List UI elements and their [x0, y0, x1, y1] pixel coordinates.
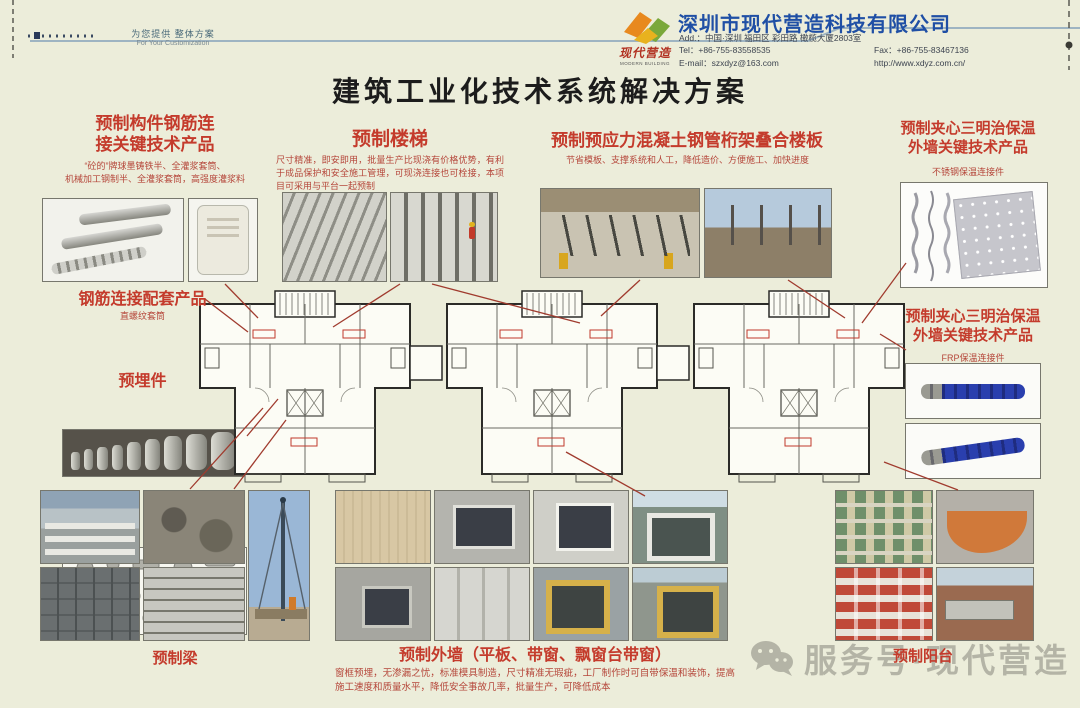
section-slab-title: 预制预应力混凝土钢管桁架叠合楼板	[538, 130, 836, 151]
company-contact: Add.：中国·深圳 福田区 彩田路 橄榄大厦2803室 Tel：+86-755…	[679, 32, 1069, 69]
tagline-en: For Your Customization	[108, 40, 238, 47]
sandwich-steel-line2: 外墙关键技术产品	[868, 139, 1068, 158]
photo-steel-connector-drawing	[900, 182, 1048, 288]
photo-balcony-curved	[936, 490, 1034, 564]
photo-wall-window-white	[533, 490, 629, 564]
company-logo-text: 现代营造 MODERN BUILDING	[614, 44, 676, 66]
photo-balcony-green-facade	[835, 490, 933, 564]
company-email: E-mail：szxdyz@163.com	[679, 57, 874, 69]
photo-baywindow-mold-yellow	[533, 567, 629, 641]
section-rebar-title: 预制构件钢筋连 接关键技术产品	[55, 113, 255, 156]
company-tel: Tel：+86-755-83558535	[679, 44, 874, 56]
sandwich-frp-line1: 预制夹心三明治保温	[878, 308, 1068, 327]
floor-plan	[195, 288, 910, 486]
section-sandwich-steel-sub: 不锈钢保温连接件	[868, 166, 1068, 179]
photo-crane	[248, 490, 310, 641]
photo-grout-sleeves	[42, 198, 184, 282]
photo-beam-frame	[40, 567, 140, 641]
section-stairs-title: 预制楼梯	[290, 128, 490, 152]
sandwich-steel-line1: 预制夹心三明治保温	[868, 120, 1068, 139]
section-wall-desc: 窗框预埋，无渗漏之忧，标准模具制造，尺寸精准无瑕疵，工厂制作时可自带保温和装饰，…	[335, 667, 735, 695]
photo-beam-factory	[40, 490, 140, 564]
poster: 为您提供 整体方案 For Your Customization 现代营造 MO…	[0, 0, 1080, 708]
worker-figure	[469, 227, 475, 239]
wechat-icon	[748, 638, 794, 678]
company-web: http://www.xdyz.com.cn/	[874, 57, 1069, 69]
section-coupler-title: 钢筋连接配套产品	[50, 290, 235, 310]
photo-balcony-red-facade	[835, 567, 933, 641]
photo-balcony-brick	[936, 567, 1034, 641]
sandwich-frp-line2: 外墙关键技术产品	[878, 327, 1068, 346]
section-stairs-desc: 尺寸精准，即安即用，批量生产比现浇有价格优势，有利于成品保护和安全施工管理，可现…	[276, 154, 504, 193]
section-slab-desc: 节省模板、支撑系统和人工，降低造价、方便施工、加快进度	[540, 154, 835, 167]
photo-baywindow-mold-yellow2	[632, 567, 728, 641]
rebar-title-line1: 预制构件钢筋连	[55, 113, 255, 134]
photo-slab-site	[704, 188, 832, 278]
section-embedded-title: 预埋件	[50, 372, 235, 392]
section-wall-title: 预制外墙（平板、带窗、飘窗台带窗）	[335, 646, 735, 666]
company-logo-icon	[618, 6, 676, 46]
photo-beam-rebar	[143, 567, 245, 641]
section-rebar-desc: “砼的”牌球墨铸铁半、全灌浆套筒、 机械加工钢制半、全灌浆套筒，高强度灌浆料	[30, 160, 280, 186]
section-coupler-sub: 直螺纹套筒	[50, 310, 235, 323]
section-sandwich-steel-title: 预制夹心三明治保温 外墙关键技术产品	[868, 120, 1068, 158]
section-balcony-title: 预制阳台	[868, 648, 978, 667]
photo-wall-window-grey	[434, 490, 530, 564]
photo-frp-connector-1	[905, 363, 1041, 419]
photo-truss-slab	[540, 188, 700, 278]
photo-grout-bag	[188, 198, 258, 282]
photo-wall-flat-panel	[335, 490, 431, 564]
photo-wall-panels	[434, 567, 530, 641]
page-title: 建筑工业化技术系统解决方案	[0, 70, 1080, 110]
photo-stairs-stacked	[282, 192, 387, 282]
photo-baywindow-mold-green	[632, 490, 728, 564]
tagline-cn: 为您提供 整体方案	[108, 27, 238, 40]
company-address: Add.：中国·深圳 福田区 彩田路 橄榄大厦2803室	[679, 32, 1069, 44]
photo-beam-aerial	[143, 490, 245, 564]
logo-cn: 现代营造	[614, 44, 676, 61]
section-sandwich-frp-title: 预制夹心三明治保温 外墙关键技术产品	[878, 308, 1068, 346]
rebar-desc-line2: 机械加工钢制半、全灌浆套筒，高强度灌浆料	[30, 173, 280, 186]
rebar-desc-line1: “砼的”牌球墨铸铁半、全灌浆套筒、	[30, 160, 280, 173]
logo-en: MODERN BUILDING	[614, 61, 676, 66]
rebar-title-line2: 接关键技术产品	[55, 134, 255, 155]
photo-wall-opening	[335, 567, 431, 641]
section-beam-title: 预制梁	[120, 650, 230, 669]
company-fax: Fax：+86-755-83467136	[874, 44, 1069, 56]
section-sandwich-frp-sub: FRP保温连接件	[878, 352, 1068, 365]
tagline: 为您提供 整体方案 For Your Customization	[108, 27, 238, 47]
perforated-plate	[953, 191, 1041, 279]
photo-stairs-upright	[390, 192, 498, 282]
photo-frp-connector-2	[905, 423, 1041, 479]
